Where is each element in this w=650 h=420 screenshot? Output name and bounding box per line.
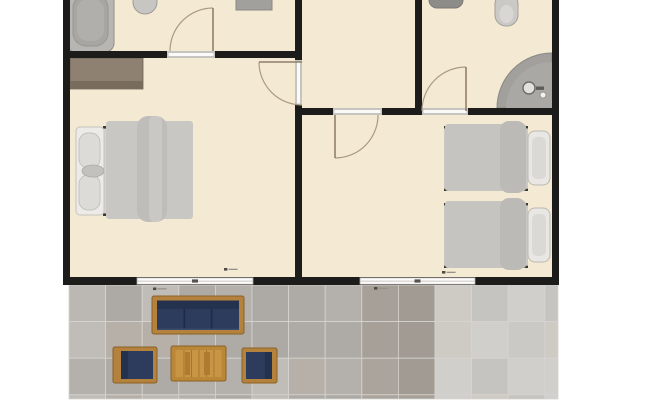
wall-outer-right [552,0,559,285]
patio-tile [435,395,472,399]
twin-pillow-inner [532,214,546,256]
window-left-tick [192,279,198,282]
door-opening-bath2-inner [424,110,467,113]
twin-blanket-fold [500,121,526,193]
patio-tile [508,322,545,359]
sink-topright [429,0,463,8]
patio-tile [289,322,326,359]
blanket-fold-inner [149,116,162,222]
patio-tile [325,395,362,399]
door-opening-bedroom1-inner [297,62,300,104]
patio-tile [398,395,435,399]
patio-tile [362,395,399,399]
patio-tile [325,358,362,395]
patio-tile [362,358,399,395]
dimension-marker [153,288,156,291]
patio-tile [472,395,509,399]
toilet-topright-bowl [500,5,514,23]
table-plank-line [199,350,200,377]
shower-faucet [536,87,544,90]
patio-sofa-backrest [157,301,239,310]
patio-tile [435,322,472,359]
patio-tile [545,322,558,359]
table-plank-shade [185,352,190,375]
dimension-marker-dash [447,272,456,273]
patio-tile [472,285,509,322]
bathtub-floor [77,0,104,41]
sofa-divider [211,309,213,330]
patio-tile [252,395,289,399]
shower-drain [523,82,535,94]
patio-tile [398,358,435,395]
wall-center-vertical [295,0,302,285]
patio-tile [398,285,435,322]
twin-pillow-inner [532,137,546,179]
dimension-marker-dash [158,288,167,289]
patio-tile [508,395,545,399]
sofa-divider [184,309,186,330]
patio-chair-backrest [265,352,272,379]
table-plank-line [191,350,192,377]
patio-tile [252,285,289,322]
door-opening-bath1-inner [169,53,214,56]
patio-tile [398,322,435,359]
patio-tile [472,358,509,395]
patio-tile [545,358,558,395]
dimension-marker [442,271,445,274]
pillow [79,175,100,210]
table-plank-shade [204,352,210,375]
patio-chair-backrest [121,351,128,379]
window-right-tick [415,279,421,282]
headboard-cushion [82,165,104,177]
table-plank-line [214,350,215,377]
patio-tile [142,395,179,399]
sofa-seat-edge [157,329,239,331]
patio-tile [215,395,252,399]
patio-tile [508,285,545,322]
patio-tile [69,285,106,322]
floor-plan [0,0,650,420]
patio-tile [289,395,326,399]
patio-tile [435,358,472,395]
dimension-marker-dash [229,269,238,270]
patio-tile [435,285,472,322]
wall-hall-east [415,0,422,115]
patio-tile [472,322,509,359]
dimension-marker [374,287,377,290]
patio-tile [362,322,399,359]
patio-tile [508,358,545,395]
dimension-marker [224,268,227,271]
patio-tile [69,395,106,399]
wardrobe-shadow [70,81,143,89]
dimension-marker-dash [379,288,388,289]
patio-tile [106,395,143,399]
patio-tile [545,395,558,399]
patio-tile [289,358,326,395]
shower-knob [540,92,546,98]
patio-tile [106,285,143,322]
pillow [79,133,100,168]
patio-tile [69,322,106,359]
patio-tile [179,395,216,399]
wall-outer-left [63,0,70,285]
door-opening-bedroom2-inner [335,110,381,113]
patio-tile [545,285,558,322]
bathroom-shelf [236,0,272,10]
table-plank-line [184,350,185,377]
patio-tile [325,322,362,359]
patio-tile [289,285,326,322]
twin-blanket-fold [500,198,526,270]
patio-tile [362,285,399,322]
floor-plan-page [0,0,650,420]
patio-tile [325,285,362,322]
patio-tile [69,358,106,395]
